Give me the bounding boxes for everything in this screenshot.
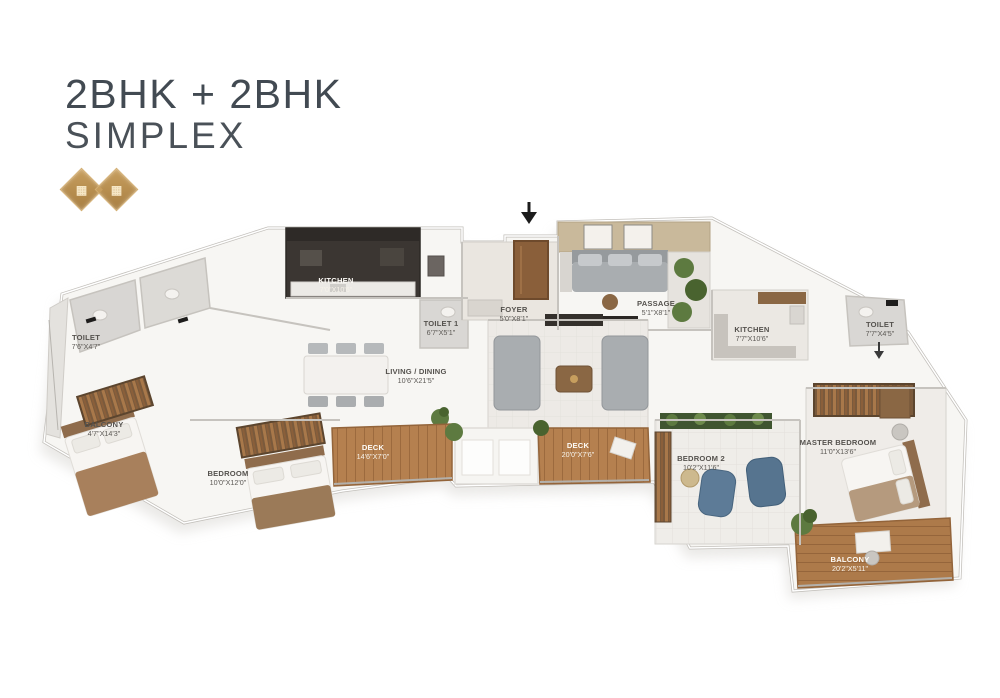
- room-label: KITCHEN: [734, 325, 769, 334]
- badge-separator-icon: ◆: [96, 184, 103, 195]
- room-dim: 7'7"X4'5": [866, 329, 895, 338]
- entrance-door: [514, 241, 548, 299]
- room-dim: 5'0"X8'1": [500, 314, 529, 323]
- room-dim: 4'7"X14'3": [88, 429, 121, 438]
- kitchen-left: [286, 228, 420, 298]
- bedroom-2-right: [655, 413, 800, 544]
- room-label: TOILET: [866, 320, 894, 329]
- room-dim: 7'0"X10'6": [320, 285, 353, 294]
- room-dim: 7'7"X10'6": [736, 334, 769, 343]
- room-label: TOILET 1: [424, 319, 459, 328]
- room-label: DECK: [362, 443, 385, 452]
- room-label: BEDROOM 2: [677, 454, 725, 463]
- room-label: KITCHEN: [318, 276, 353, 285]
- room-dim: 5'1"X8'1": [642, 308, 671, 317]
- room-dim: 20'2"X5'11": [832, 564, 869, 573]
- plant: [439, 407, 449, 417]
- room-dim: 11'0"X13'6": [820, 447, 857, 456]
- room-dim: 6'7"X5'1": [427, 328, 456, 337]
- room-dim: 10'6"X21'5": [398, 376, 435, 385]
- room-label: MASTER BEDROOM: [800, 438, 877, 447]
- room-label: BEDROOM: [207, 469, 248, 478]
- room-label: TOILET: [72, 333, 100, 342]
- master-bedroom: [806, 384, 946, 536]
- room-label: DECK: [567, 441, 590, 450]
- room-dim: 10'2"X11'6": [683, 463, 720, 472]
- room-label: PASSAGE: [637, 299, 675, 308]
- central-living: [488, 314, 648, 428]
- floorplan-page: 2BHK + 2BHK SIMPLEX ▦ ▦ ◆: [0, 0, 1000, 698]
- room-label: LIVING / DINING: [385, 367, 446, 376]
- floorplan-render: TOILET 7'6"X4'7" BALCONY 4'7"X14'3" KITC…: [0, 0, 1000, 698]
- room-dim: 7'6"X4'7": [72, 342, 101, 351]
- room-label: BALCONY: [831, 555, 870, 564]
- foyer-art: [428, 256, 444, 276]
- deck-left: [332, 424, 452, 486]
- dining-set: [304, 343, 388, 407]
- entrance-arrow-icon: [521, 202, 537, 224]
- room-dim: 10'0"X12'0": [210, 478, 247, 487]
- room-dim: 20'0"X7'6": [562, 450, 595, 459]
- balcony-nook: [445, 423, 538, 484]
- room-dim: 14'6"X7'0": [357, 452, 390, 461]
- room-label: BALCONY: [85, 420, 124, 429]
- room-label: FOYER: [500, 305, 527, 314]
